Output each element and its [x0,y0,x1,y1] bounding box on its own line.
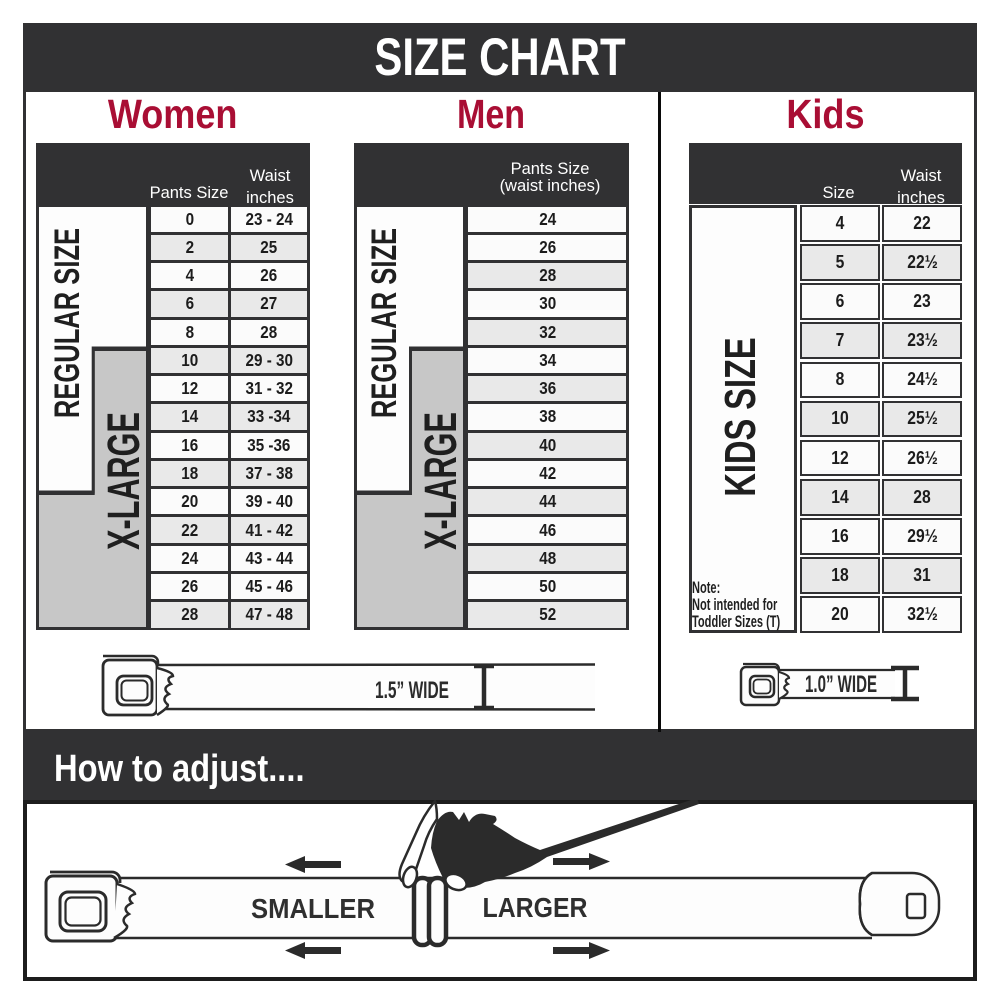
svg-text:1.5” WIDE: 1.5” WIDE [375,677,449,704]
svg-text:SMALLER: SMALLER [251,893,375,924]
svg-text:1.0” WIDE: 1.0” WIDE [805,671,877,698]
svg-text:LARGER: LARGER [483,892,588,923]
